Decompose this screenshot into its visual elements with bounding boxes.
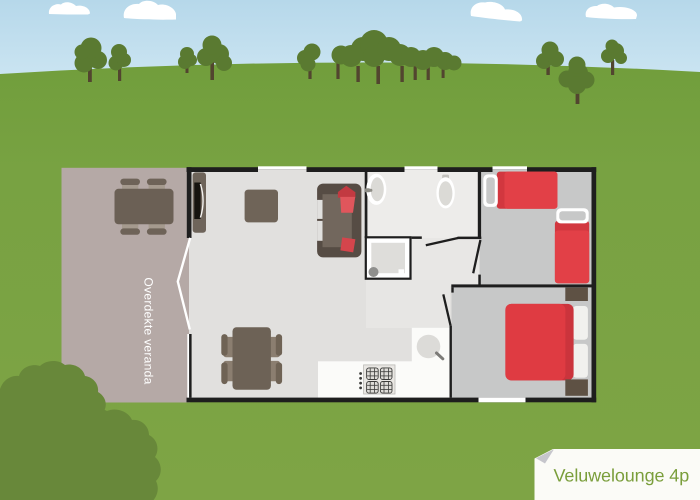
svg-text:Veluwelounge 4p: Veluwelounge 4p — [554, 466, 690, 486]
svg-text:Overdekte veranda: Overdekte veranda — [142, 277, 156, 384]
